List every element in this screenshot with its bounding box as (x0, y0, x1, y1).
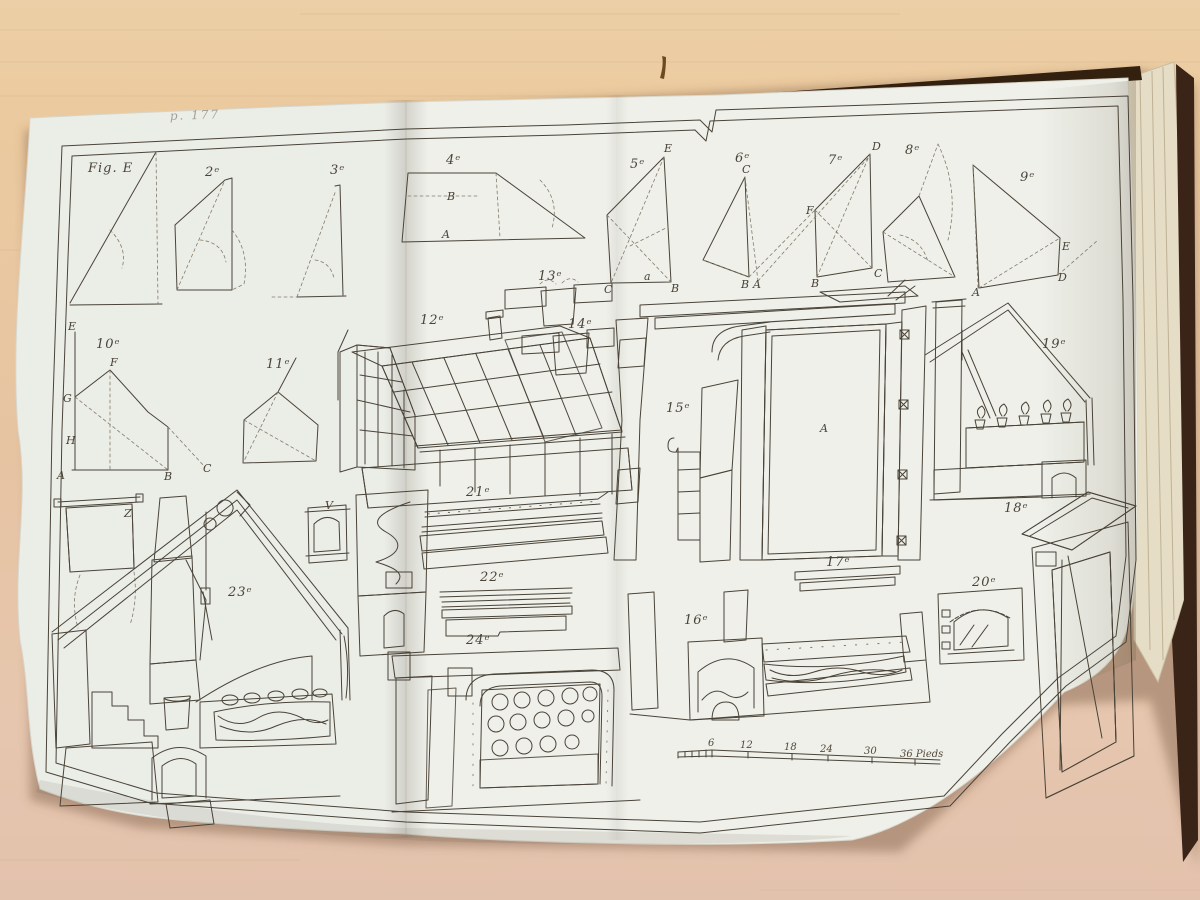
letter: D (1057, 271, 1067, 284)
page-curl-shade (1040, 80, 1136, 700)
letter: C (203, 462, 212, 475)
fig-19-label: 19ᵉ (1042, 337, 1067, 352)
scale-tick-label: 12 (740, 740, 753, 751)
letter: E (67, 320, 76, 333)
letter: E (1061, 240, 1070, 253)
fig-3-label: 3ᵉ (330, 163, 345, 178)
crease-shade (606, 95, 628, 840)
fig-9-label: 9ᵉ (1020, 170, 1035, 185)
letter: G (63, 392, 72, 405)
letter: C (604, 283, 613, 296)
letter: B (163, 470, 172, 483)
letter: H (65, 434, 76, 447)
letter: a (644, 270, 651, 283)
fig-10-label: 10ᵉ (96, 337, 121, 352)
letter: F (109, 356, 118, 369)
scale-tick-label: 18 (784, 742, 797, 753)
fig-4-label: 4ᵉ (445, 153, 461, 168)
scale-unit-label: 36 Pieds (900, 749, 943, 760)
letter: C (742, 163, 751, 176)
scale-tick-label: 30 (864, 746, 877, 757)
fig-7-label: 7ᵉ (828, 153, 843, 168)
fig-23-label: 23ᵉ (227, 585, 253, 600)
letter: F (805, 204, 814, 217)
letter: B (740, 278, 749, 291)
fig-5-label: 5ᵉ (630, 157, 645, 172)
letter: A (752, 278, 761, 291)
fig-16-label: 16ᵉ (684, 613, 709, 628)
fig-14-label: 14ᵉ (568, 317, 593, 332)
letter: E (663, 142, 672, 155)
letter: B (670, 282, 679, 295)
fig-8-label: 8ᵉ (905, 143, 920, 158)
fig-12-label: 12ᵉ (420, 313, 445, 328)
letter: A (441, 228, 450, 241)
letter: B (810, 277, 819, 290)
letter: Z (123, 507, 132, 520)
letter: C (874, 267, 883, 280)
handwritten-plate-note: p. 177 (170, 107, 221, 123)
fig-13-label: 13ᵉ (538, 269, 563, 284)
fig-e-label: Fig. E (87, 161, 133, 176)
panel-letter: A (819, 422, 828, 435)
letter: A (971, 286, 980, 299)
scale-tick-label: 6 (708, 738, 715, 749)
letter: A (56, 469, 65, 482)
fig-21-label: 21ᵉ (465, 485, 491, 500)
letter: D (871, 140, 881, 153)
fig-18-label: 18ᵉ (1004, 501, 1029, 516)
book-plate-photo: p. 177 (0, 0, 1200, 900)
fig-24-label: 24ᵉ (465, 633, 491, 648)
scale-tick-label: 24 (819, 744, 833, 755)
fig-20-label: 20ᵉ (971, 575, 997, 590)
fig-11-label: 11ᵉ (266, 357, 291, 372)
fig-17-label: 17ᵉ (826, 555, 851, 570)
fig-15-label: 15ᵉ (666, 401, 691, 416)
letter: B (446, 190, 455, 203)
fig-2-label: 2ᵉ (204, 165, 220, 180)
photo-of-open-book: p. 177 (0, 0, 1200, 900)
fig-22-label: 22ᵉ (479, 570, 505, 585)
letter: V (325, 499, 334, 512)
